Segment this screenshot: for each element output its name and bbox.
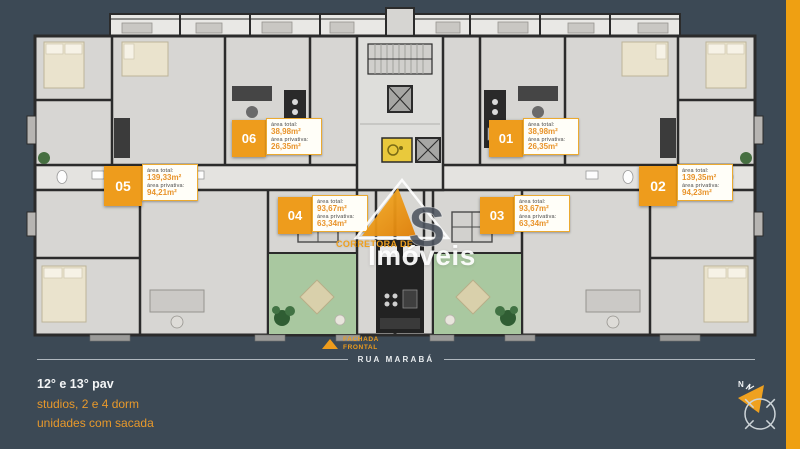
area-total-value: 38,98m²	[528, 128, 574, 137]
caption-balcony: unidades com sacada	[37, 416, 154, 430]
unit-badge-06: 06 área total: 38,98m² área privativa: 2…	[232, 120, 322, 157]
area-priv-value: 94,21m²	[147, 189, 193, 198]
street-rule-left	[37, 359, 348, 360]
unit-area-info: área total: 139,33m² área privativa: 94,…	[142, 164, 198, 201]
area-priv-value: 63,34m²	[519, 220, 565, 229]
compass-north-label: N	[738, 380, 744, 389]
street-line: RUA MARABÁ	[37, 355, 755, 364]
area-total-value: 139,33m²	[147, 174, 193, 183]
unit-badge-04: 04 área total: 93,67m² área privativa: 6…	[278, 197, 368, 234]
unit-number: 03	[480, 197, 514, 234]
area-total-value: 93,67m²	[317, 205, 363, 214]
floor-caption: 12° e 13° pav studios, 2 e 4 dorm unidad…	[37, 377, 154, 435]
accent-bar	[786, 0, 800, 449]
unit-area-info: área total: 139,35m² área privativa: 94,…	[677, 164, 733, 201]
unit-area-info: área total: 93,67m² área privativa: 63,3…	[514, 195, 570, 232]
unit-badge-03: 03 área total: 93,67m² área privativa: 6…	[480, 197, 570, 234]
unit-badge-02: 02 área total: 139,35m² área privativa: …	[639, 166, 733, 206]
facade-label: FACHADA FRONTAL	[343, 336, 379, 352]
area-priv-value: 26,35m²	[271, 143, 317, 152]
area-total-value: 139,35m²	[682, 174, 728, 183]
unit-number: 05	[104, 166, 142, 206]
area-priv-value: 94,23m²	[682, 189, 728, 198]
unit-number: 06	[232, 120, 266, 157]
area-total-value: 93,67m²	[519, 205, 565, 214]
area-priv-value: 26,35m²	[528, 143, 574, 152]
unit-badge-01: 01 área total: 38,98m² área privativa: 2…	[489, 120, 579, 157]
caption-floors: 12° e 13° pav	[37, 377, 154, 391]
compass-icon: N	[730, 374, 786, 440]
caption-types: studios, 2 e 4 dorm	[37, 397, 154, 411]
facade-label-line2: FRONTAL	[343, 344, 379, 352]
unit-number: 02	[639, 166, 677, 206]
street-rule-right	[444, 359, 755, 360]
facade-direction-marker: FACHADA FRONTAL	[322, 336, 379, 352]
street-name: RUA MARABÁ	[358, 355, 435, 364]
unit-number: 04	[278, 197, 312, 234]
unit-area-info: área total: 38,98m² área privativa: 26,3…	[523, 118, 579, 155]
area-priv-value: 63,34m²	[317, 220, 363, 229]
unit-area-info: área total: 38,98m² área privativa: 26,3…	[266, 118, 322, 155]
unit-number: 01	[489, 120, 523, 157]
area-total-value: 38,98m²	[271, 128, 317, 137]
floorplan-page: 06 área total: 38,98m² área privativa: 2…	[0, 0, 800, 449]
facade-triangle-icon	[322, 339, 338, 349]
unit-badge-05: 05 área total: 139,33m² área privativa: …	[104, 166, 198, 206]
unit-area-info: área total: 93,67m² área privativa: 63,3…	[312, 195, 368, 232]
facade-label-line1: FACHADA	[343, 336, 379, 344]
